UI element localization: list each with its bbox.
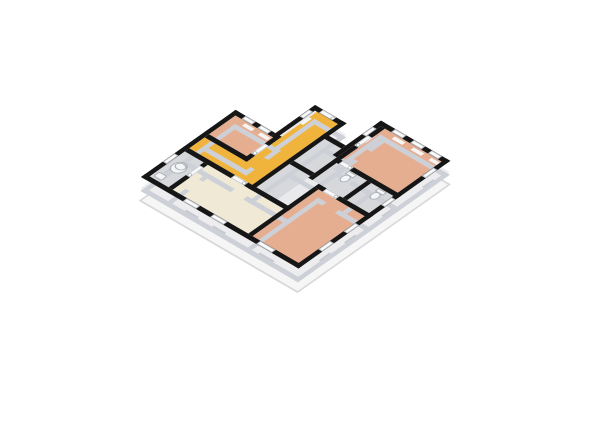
floorplan-3d-render: [0, 0, 600, 424]
floorplan-stage: [0, 0, 600, 424]
iso-projection-group: [122, 69, 468, 292]
